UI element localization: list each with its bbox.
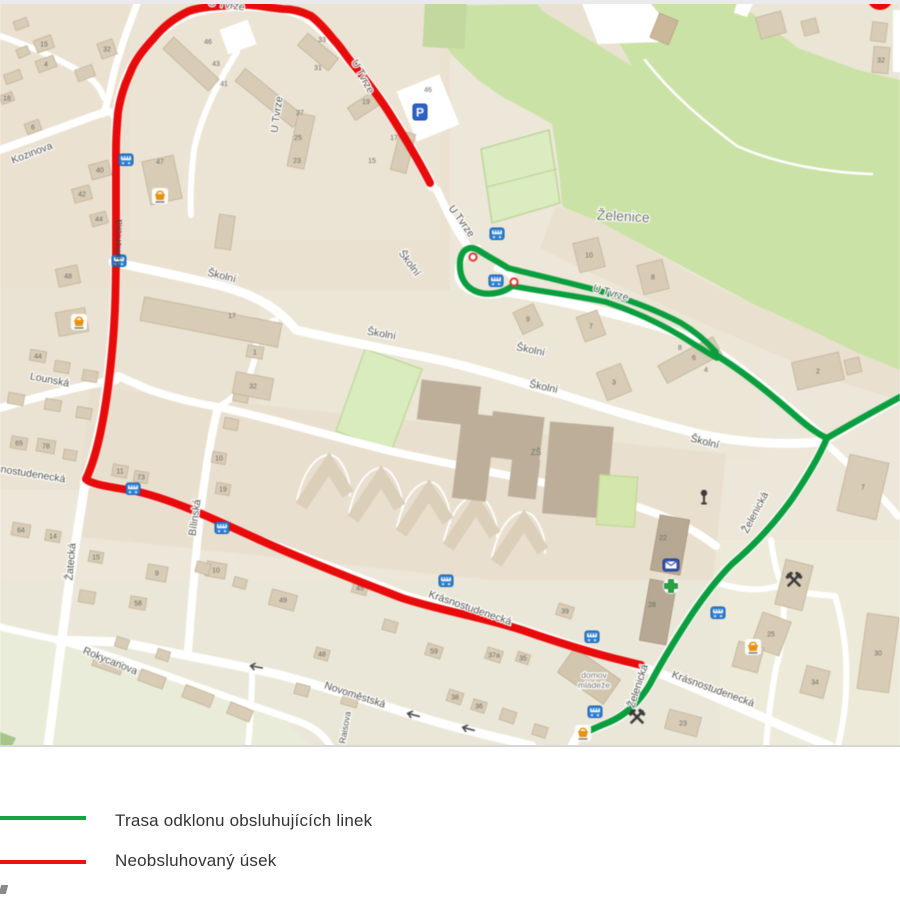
svg-text:9: 9 <box>155 571 159 578</box>
svg-text:43: 43 <box>212 61 220 68</box>
svg-text:48: 48 <box>318 652 326 659</box>
svg-text:19: 19 <box>362 99 370 106</box>
svg-text:4: 4 <box>44 62 48 69</box>
svg-text:27: 27 <box>296 110 304 117</box>
svg-text:P: P <box>416 106 424 120</box>
svg-text:35: 35 <box>519 656 527 663</box>
svg-text:49: 49 <box>279 598 287 605</box>
svg-text:42: 42 <box>78 192 86 199</box>
svg-text:6: 6 <box>692 355 696 362</box>
svg-text:38: 38 <box>451 695 459 702</box>
svg-text:36: 36 <box>475 704 483 711</box>
svg-text:44: 44 <box>95 217 103 224</box>
svg-text:46: 46 <box>424 87 432 94</box>
svg-text:17: 17 <box>390 135 398 142</box>
svg-text:48: 48 <box>64 274 72 281</box>
svg-text:47: 47 <box>156 159 164 166</box>
svg-text:6: 6 <box>31 125 35 132</box>
svg-text:8: 8 <box>678 345 682 352</box>
svg-text:32: 32 <box>103 47 111 54</box>
svg-text:23: 23 <box>293 158 301 165</box>
svg-text:7: 7 <box>589 324 593 331</box>
svg-text:2: 2 <box>816 369 820 376</box>
svg-text:41: 41 <box>220 81 228 88</box>
svg-text:34: 34 <box>811 680 819 687</box>
svg-text:4: 4 <box>704 367 708 374</box>
svg-text:8: 8 <box>651 275 655 282</box>
svg-text:32: 32 <box>249 384 257 391</box>
svg-text:28: 28 <box>648 602 656 609</box>
svg-text:65: 65 <box>15 441 23 448</box>
svg-text:23: 23 <box>679 721 687 728</box>
svg-text:11: 11 <box>116 469 123 476</box>
svg-text:10: 10 <box>585 253 593 260</box>
svg-text:14: 14 <box>49 534 57 541</box>
svg-text:31: 31 <box>314 65 322 72</box>
svg-text:44: 44 <box>34 354 42 361</box>
svg-text:22: 22 <box>659 535 667 542</box>
svg-text:mládeže: mládeže <box>578 680 610 690</box>
svg-text:25: 25 <box>294 135 302 142</box>
svg-text:Želenice: Želenice <box>596 207 650 226</box>
svg-text:15: 15 <box>40 42 48 49</box>
svg-text:15: 15 <box>92 555 100 562</box>
svg-text:domov: domov <box>581 670 607 680</box>
svg-text:32: 32 <box>877 58 885 65</box>
svg-text:10: 10 <box>215 456 223 463</box>
svg-text:46: 46 <box>204 39 212 46</box>
svg-text:3: 3 <box>612 380 616 387</box>
svg-text:1: 1 <box>253 350 257 357</box>
svg-text:58: 58 <box>134 601 142 608</box>
svg-text:30: 30 <box>874 651 882 658</box>
svg-text:17: 17 <box>228 313 236 320</box>
svg-text:73: 73 <box>137 475 145 482</box>
svg-text:9: 9 <box>526 317 530 324</box>
svg-text:37a: 37a <box>488 653 500 660</box>
svg-text:19: 19 <box>219 487 227 494</box>
svg-text:25: 25 <box>767 632 775 639</box>
svg-text:33: 33 <box>318 37 326 44</box>
svg-text:18: 18 <box>3 96 11 103</box>
svg-text:40: 40 <box>96 168 104 175</box>
svg-text:Kamenická: Kamenická <box>112 219 125 267</box>
svg-text:39: 39 <box>561 609 569 616</box>
svg-text:ZŠ: ZŠ <box>531 448 541 457</box>
svg-text:10: 10 <box>212 568 220 575</box>
svg-text:64: 64 <box>17 528 25 535</box>
svg-text:78: 78 <box>42 444 50 451</box>
svg-text:15: 15 <box>368 158 376 165</box>
svg-text:7: 7 <box>861 485 865 492</box>
svg-text:59: 59 <box>430 649 438 656</box>
